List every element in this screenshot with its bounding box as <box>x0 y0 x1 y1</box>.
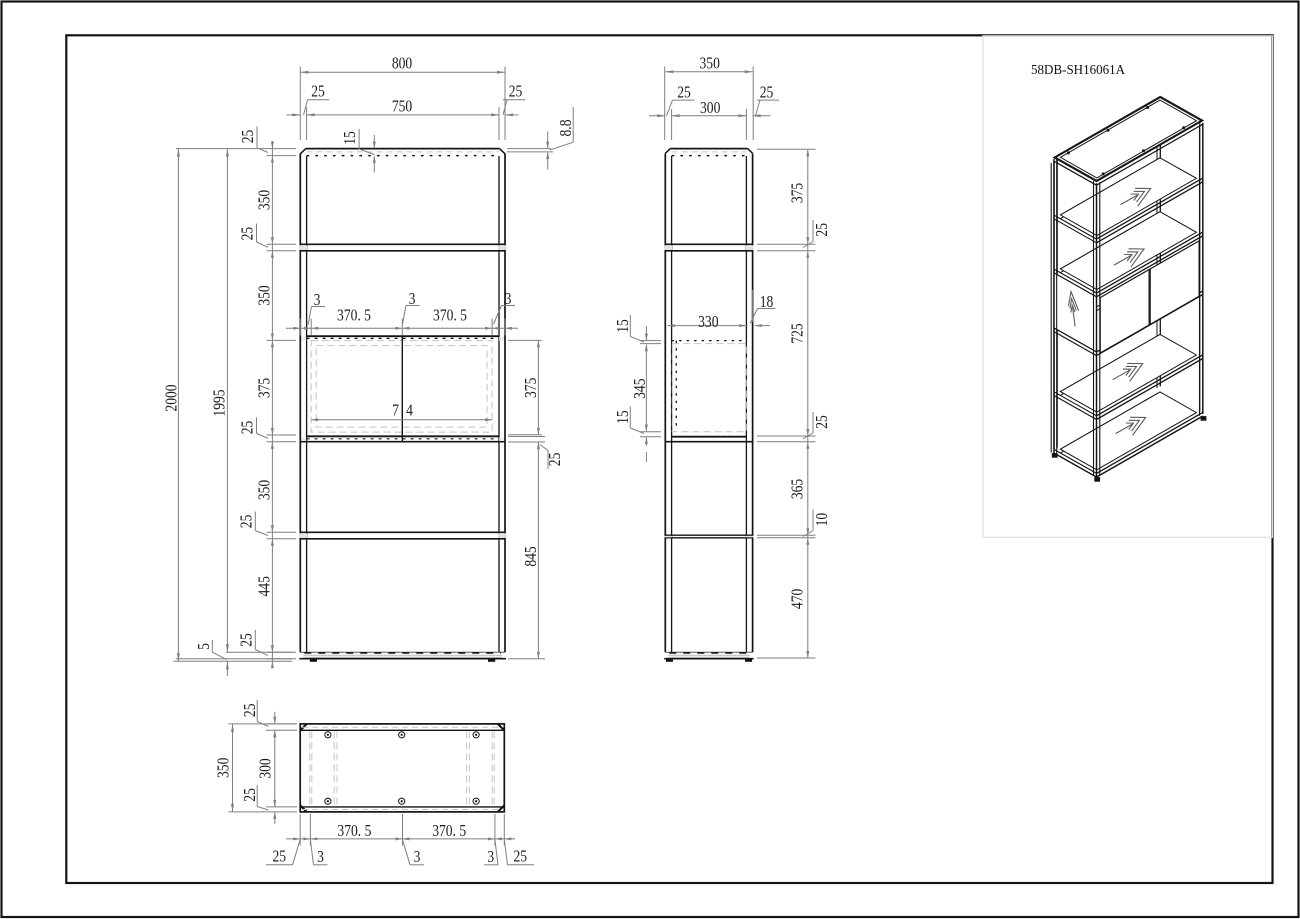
svg-text:3: 3 <box>317 848 324 867</box>
svg-text:25: 25 <box>760 83 774 102</box>
svg-text:350: 350 <box>214 757 233 778</box>
svg-text:370. 5: 370. 5 <box>432 822 466 841</box>
svg-text:300: 300 <box>256 758 275 779</box>
svg-text:375: 375 <box>255 378 274 399</box>
svg-text:370. 5: 370. 5 <box>337 822 371 841</box>
svg-text:5: 5 <box>195 643 214 650</box>
svg-text:25: 25 <box>273 847 287 866</box>
svg-text:25: 25 <box>677 83 691 102</box>
svg-text:25: 25 <box>238 420 257 434</box>
svg-text:445: 445 <box>255 576 274 597</box>
svg-text:370. 5: 370. 5 <box>337 306 371 325</box>
svg-text:750: 750 <box>392 97 413 116</box>
svg-text:300: 300 <box>700 99 721 118</box>
svg-text:375: 375 <box>788 183 807 204</box>
svg-text:330: 330 <box>698 312 719 331</box>
svg-text:845: 845 <box>522 546 541 567</box>
svg-text:350: 350 <box>255 190 274 211</box>
svg-text:1995: 1995 <box>210 389 229 416</box>
svg-text:25: 25 <box>813 223 832 237</box>
svg-text:25: 25 <box>311 82 325 101</box>
svg-text:3: 3 <box>487 848 494 867</box>
svg-text:4: 4 <box>406 401 413 420</box>
svg-text:345: 345 <box>631 378 650 399</box>
svg-text:470: 470 <box>788 588 807 609</box>
svg-text:375: 375 <box>522 377 541 398</box>
svg-text:25: 25 <box>238 227 257 241</box>
svg-text:25: 25 <box>514 847 528 866</box>
svg-text:350: 350 <box>255 480 274 501</box>
svg-text:800: 800 <box>392 54 413 73</box>
svg-text:25: 25 <box>239 129 258 143</box>
svg-text:365: 365 <box>788 479 807 500</box>
svg-text:25: 25 <box>237 633 256 647</box>
svg-text:370. 5: 370. 5 <box>433 306 467 325</box>
svg-text:350: 350 <box>700 54 721 73</box>
svg-text:15: 15 <box>341 131 360 145</box>
svg-text:25: 25 <box>509 82 523 101</box>
svg-text:725: 725 <box>788 323 807 344</box>
svg-text:25: 25 <box>237 514 256 528</box>
svg-text:10: 10 <box>813 513 832 527</box>
svg-text:3: 3 <box>414 848 421 867</box>
svg-text:350: 350 <box>255 285 274 306</box>
svg-text:7: 7 <box>392 401 399 420</box>
svg-text:25: 25 <box>813 415 832 429</box>
svg-text:2000: 2000 <box>162 384 181 411</box>
svg-text:58DB-SH16061A: 58DB-SH16061A <box>1031 62 1125 78</box>
